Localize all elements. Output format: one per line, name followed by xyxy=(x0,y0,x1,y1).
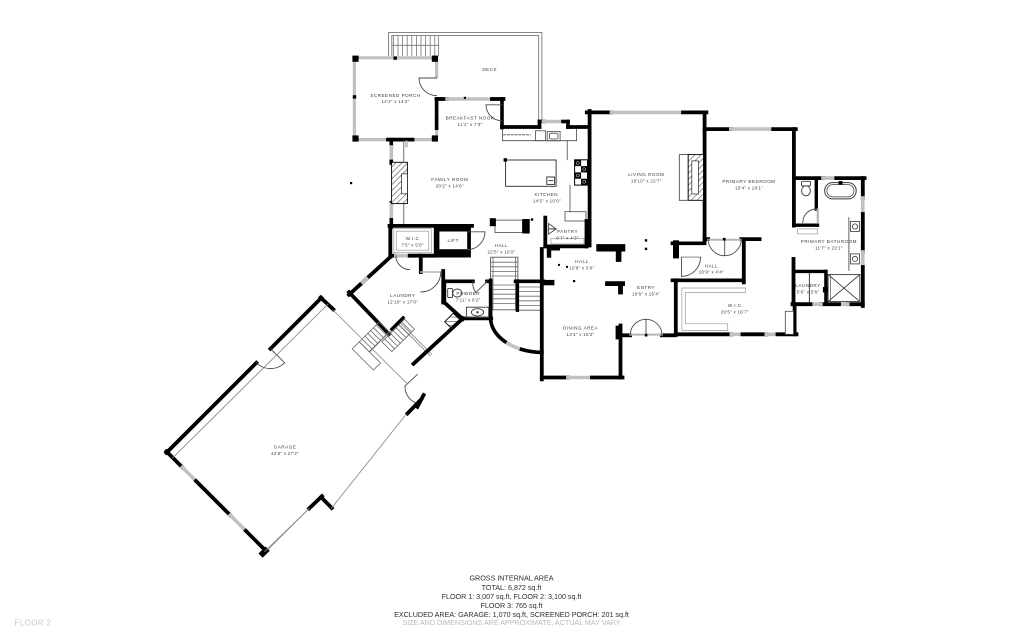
svg-text:42'8" x 27'2": 42'8" x 27'2" xyxy=(271,451,299,456)
svg-text:7'5" x 5'0": 7'5" x 5'0" xyxy=(401,242,424,247)
svg-text:GROSS INTERNAL AREA: GROSS INTERNAL AREA xyxy=(469,574,553,583)
svg-text:SCREENED PORCH: SCREENED PORCH xyxy=(370,93,420,98)
svg-text:FLOOR 1: 3,007 sq.ft, FLOOR 2:: FLOOR 1: 3,007 sq.ft, FLOOR 2: 3,100 sq.… xyxy=(442,592,582,601)
svg-text:LAUNDRY: LAUNDRY xyxy=(795,283,820,288)
svg-text:TOTAL: 6,872 sq.ft: TOTAL: 6,872 sq.ft xyxy=(482,583,542,592)
svg-text:FAMILY ROOM: FAMILY ROOM xyxy=(431,177,468,182)
svg-text:DECK: DECK xyxy=(482,67,497,72)
svg-text:LIVING ROOM: LIVING ROOM xyxy=(628,172,664,177)
svg-text:HALL: HALL xyxy=(495,243,509,248)
svg-text:11'7" x 22'1": 11'7" x 22'1" xyxy=(815,246,843,251)
svg-text:HALL: HALL xyxy=(575,259,589,264)
svg-text:LAUNDRY: LAUNDRY xyxy=(390,293,415,298)
svg-text:10'9" x 4'4": 10'9" x 4'4" xyxy=(699,270,724,275)
svg-text:HALL: HALL xyxy=(705,263,719,268)
svg-text:PANTRY: PANTRY xyxy=(557,229,578,234)
svg-text:BREAKFAST NOOK: BREAKFAST NOOK xyxy=(446,116,495,121)
svg-text:10'8" x 5'6": 10'8" x 5'6" xyxy=(569,266,594,271)
svg-text:20'2" x 14'6": 20'2" x 14'6" xyxy=(436,183,464,188)
svg-text:6'7" x 4'3": 6'7" x 4'3" xyxy=(556,236,579,241)
svg-text:GARAGE: GARAGE xyxy=(274,444,297,449)
svg-text:10'6" x 15'4": 10'6" x 15'4" xyxy=(632,292,660,297)
svg-text:15'4" x 19'1": 15'4" x 19'1" xyxy=(735,186,763,191)
svg-text:ENTRY: ENTRY xyxy=(637,285,655,290)
svg-text:PRIMARY BATHROOM: PRIMARY BATHROOM xyxy=(801,239,857,244)
svg-text:LIFT: LIFT xyxy=(447,238,458,243)
svg-text:14'5" x 16'0": 14'5" x 16'0" xyxy=(533,199,561,204)
svg-text:KITCHEN: KITCHEN xyxy=(534,192,558,197)
svg-text:FLOOR 2: FLOOR 2 xyxy=(15,619,52,628)
svg-text:SIZE AND DIMENSIONS ARE APPROX: SIZE AND DIMENSIONS ARE APPROXIMATE, ACT… xyxy=(402,618,620,627)
svg-text:14'2" x 14'2": 14'2" x 14'2" xyxy=(382,99,410,104)
svg-text:20'5" x 16'7": 20'5" x 16'7" xyxy=(721,310,749,315)
svg-text:FLOOR 3: 765 sq.ft: FLOOR 3: 765 sq.ft xyxy=(481,601,543,610)
svg-text:11'1" x 7'3": 11'1" x 7'3" xyxy=(458,122,483,127)
svg-text:7'11" x 6'2": 7'11" x 6'2" xyxy=(456,298,481,303)
svg-text:13'4" x 16'2": 13'4" x 16'2" xyxy=(567,332,595,337)
svg-text:22'5" x 10'2": 22'5" x 10'2" xyxy=(488,249,516,254)
svg-text:W.I.C: W.I.C xyxy=(406,236,420,241)
svg-text:12'10" x 17'0": 12'10" x 17'0" xyxy=(387,300,418,305)
svg-text:POWDER: POWDER xyxy=(456,291,480,296)
svg-text:W.I.C: W.I.C xyxy=(728,303,742,308)
svg-text:5'6" x 5'6": 5'6" x 5'6" xyxy=(797,289,820,294)
svg-text:PRIMARY BEDROOM: PRIMARY BEDROOM xyxy=(722,179,775,184)
svg-text:19'10" x 22'7": 19'10" x 22'7" xyxy=(631,179,662,184)
svg-text:DINING AREA: DINING AREA xyxy=(563,325,599,330)
